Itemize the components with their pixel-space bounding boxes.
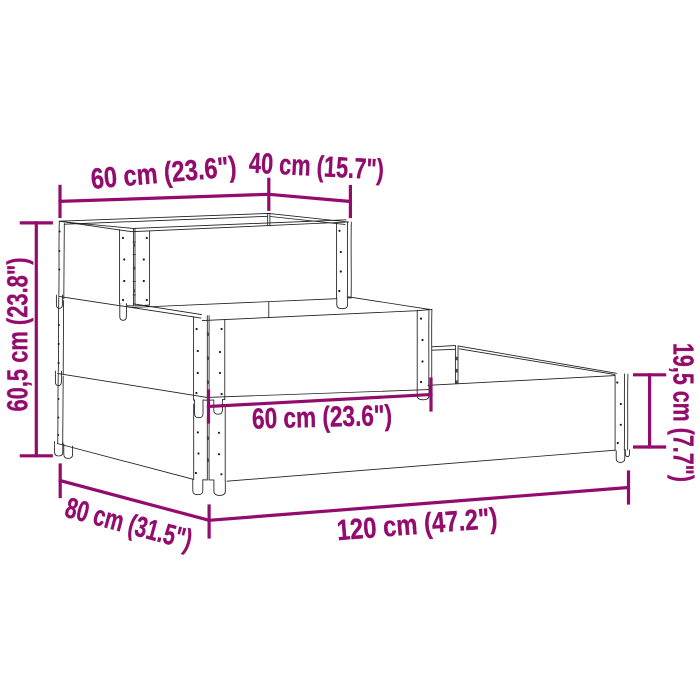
svg-text:60 cm (23.6"): 60 cm (23.6") [252, 400, 393, 436]
svg-text:19,5 cm (7.7"): 19,5 cm (7.7") [667, 343, 699, 482]
svg-text:60,5 cm (23.8"): 60,5 cm (23.8") [2, 258, 34, 412]
